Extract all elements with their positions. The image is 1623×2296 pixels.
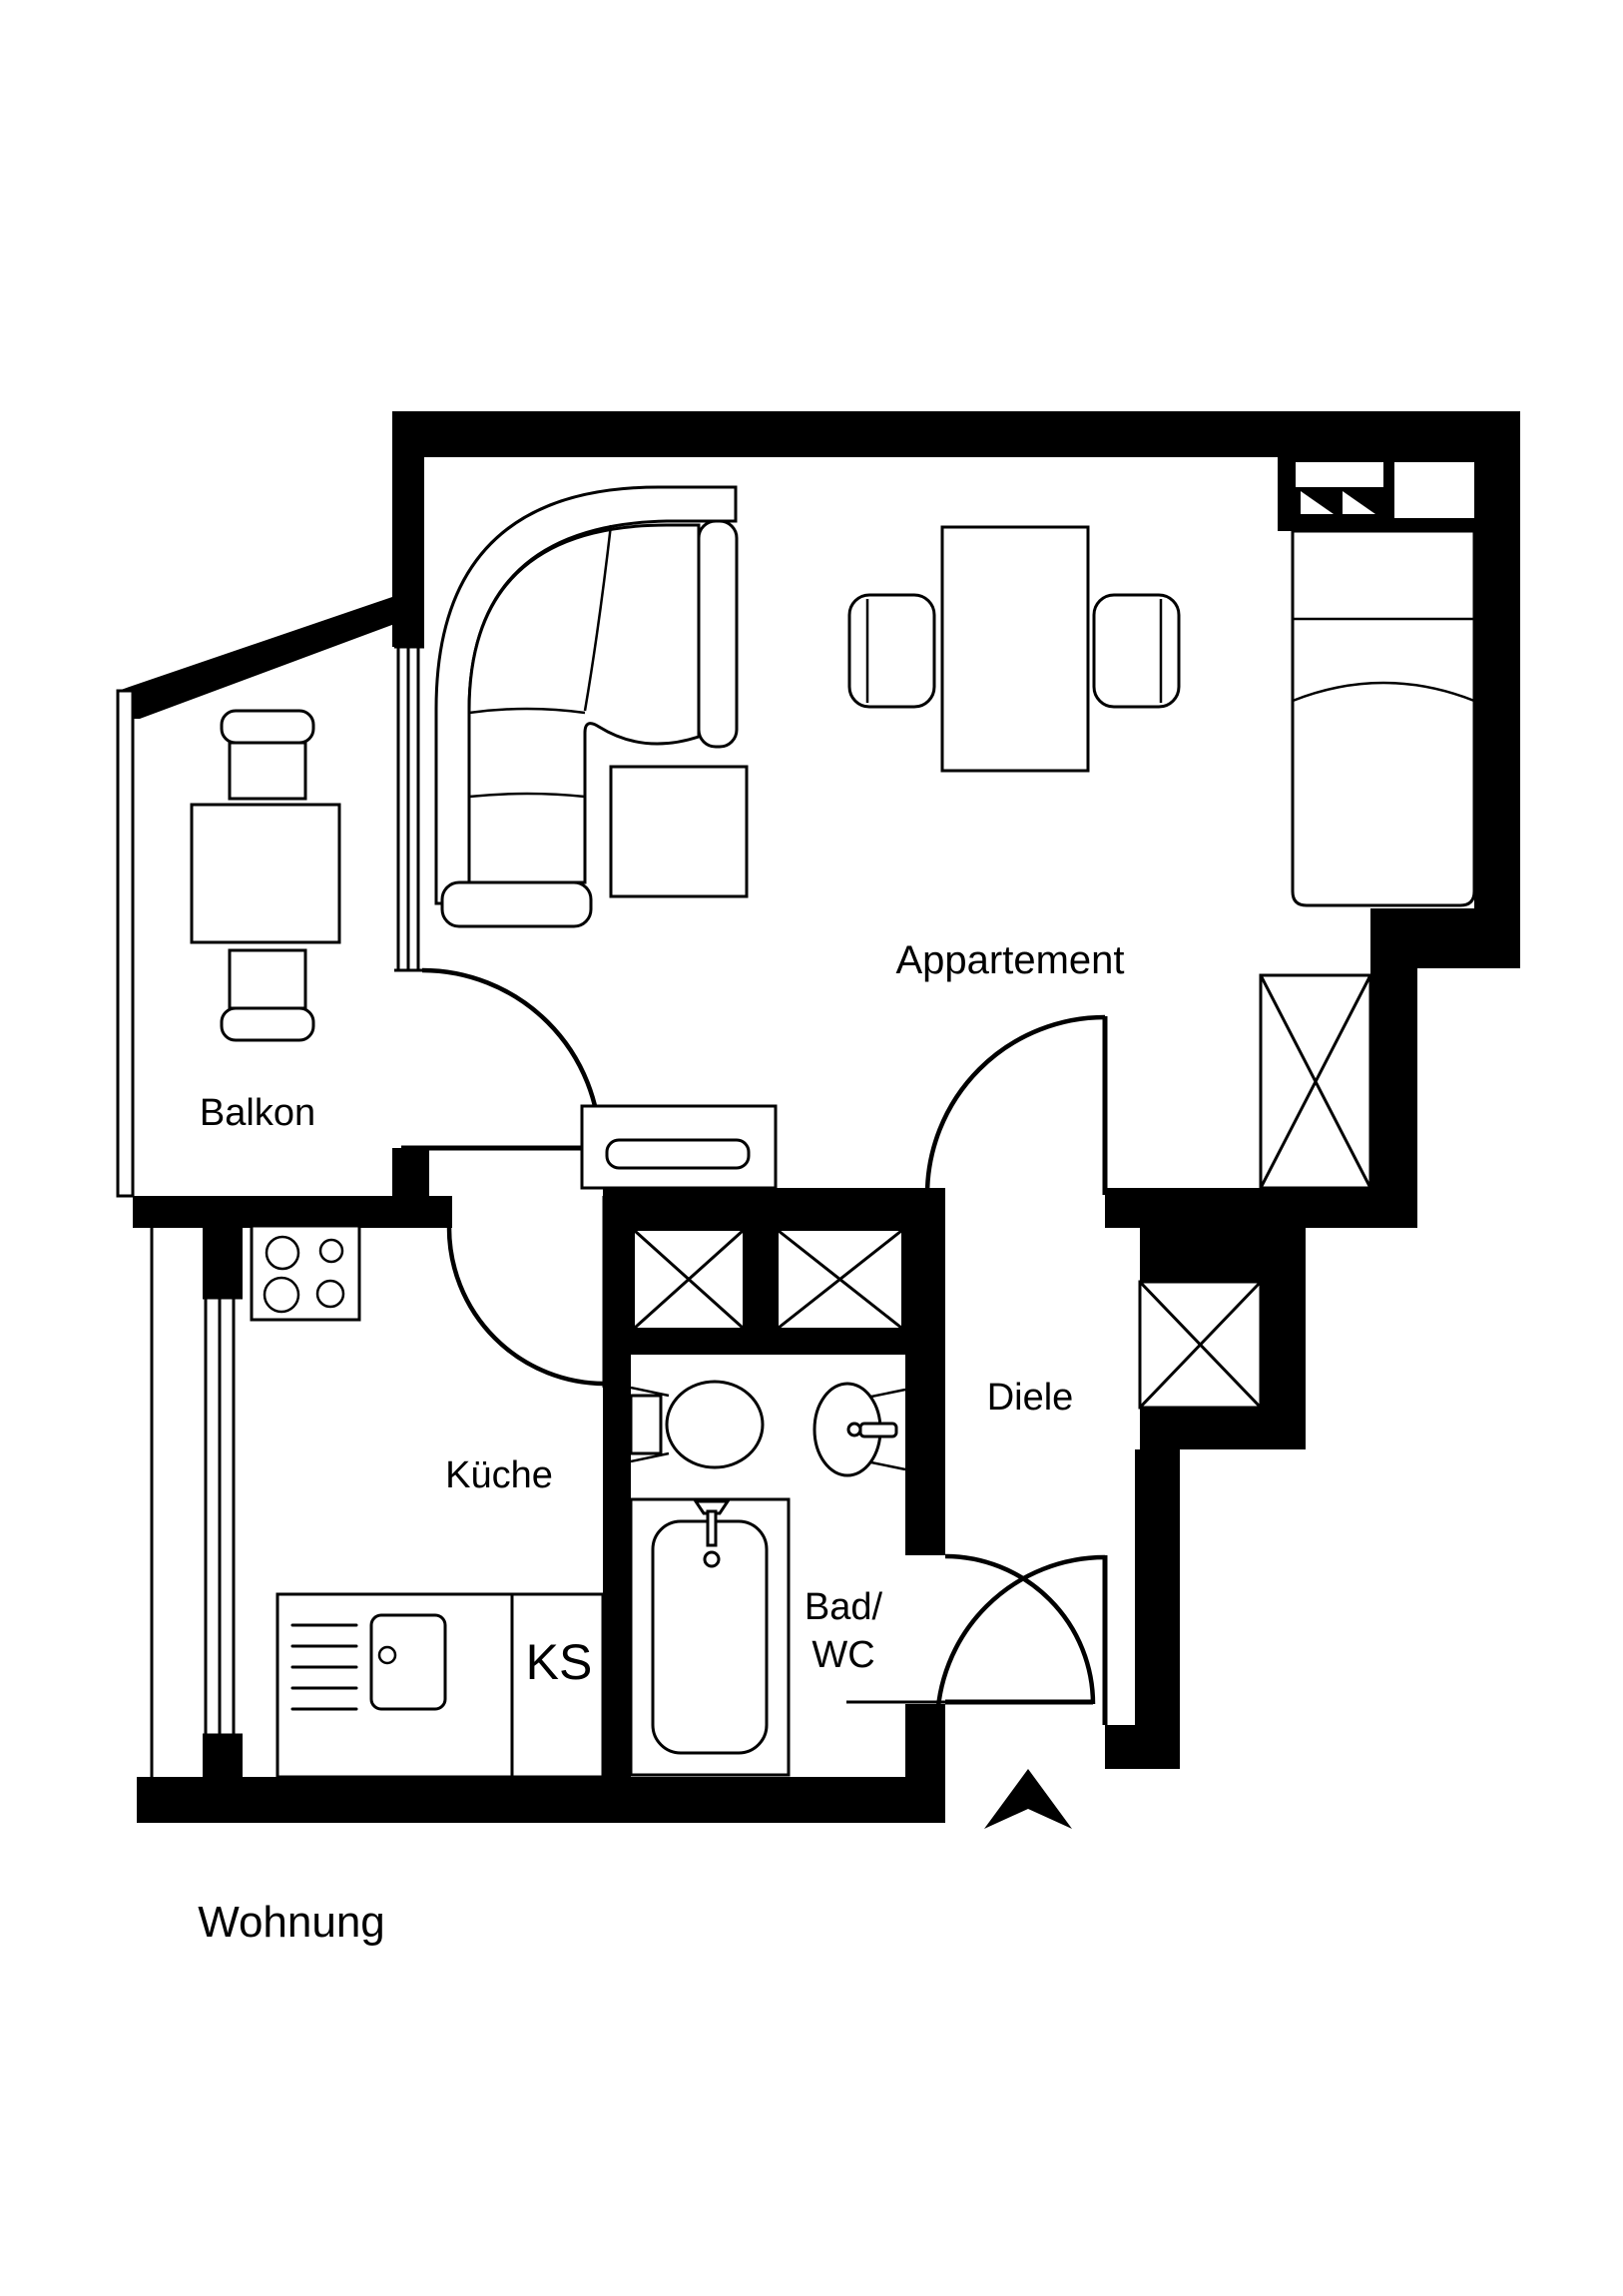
wardrobe-appartement-icon	[1261, 975, 1370, 1188]
wardrobe-diele-icon	[1140, 1282, 1261, 1408]
label-bad-line2: WC	[811, 1634, 874, 1676]
wall-kitchen-west-bottom	[203, 1735, 243, 1823]
bathtub	[631, 1499, 789, 1775]
wall-kitchen-bath-divider	[603, 1355, 631, 1777]
label-appartement: Appartement	[895, 938, 1124, 982]
wall-balcony-bottom	[133, 1196, 452, 1228]
wall-diele-ne-block	[1140, 1228, 1306, 1282]
desk	[942, 527, 1088, 771]
door-kitchen	[449, 1196, 605, 1388]
kitchen-sink-counter	[277, 1594, 512, 1777]
door-bad-wc	[846, 1556, 1093, 1704]
wall-cap-under-bed	[1370, 908, 1520, 968]
balcony-chair-top	[222, 711, 313, 799]
wall-under-diele-wardrobe	[1140, 1408, 1306, 1449]
stove	[252, 1226, 359, 1320]
wall-left-upper	[392, 411, 424, 611]
balcony-railing	[118, 691, 133, 1196]
label-ks: KS	[526, 1634, 593, 1690]
label-balkon: Balkon	[200, 1092, 315, 1134]
wall-right-upper	[1474, 411, 1520, 968]
shelf-inset-right	[1394, 462, 1474, 518]
floorplan-svg: Appartement Balkon Küche Diele Bad/ WC K…	[0, 0, 1623, 2296]
door-balcony	[401, 970, 600, 1148]
sideboard	[582, 1106, 776, 1188]
wall-kitchen-west-top	[203, 1196, 243, 1298]
bed	[1293, 531, 1474, 905]
kitchen-window	[203, 1298, 243, 1735]
balcony-chair-bottom	[222, 950, 313, 1040]
balcony-table	[192, 805, 339, 942]
wall-right-mid	[1370, 968, 1417, 1228]
label-diele: Diele	[987, 1377, 1074, 1419]
livingroom-window	[394, 647, 424, 970]
bathroom-sink	[814, 1384, 905, 1475]
wall-window-stub-bottom	[392, 1148, 429, 1196]
label-kueche: Küche	[445, 1454, 553, 1496]
shaft-right-icon	[779, 1231, 901, 1328]
wall-entrance-step	[1105, 1725, 1180, 1769]
wall-bottom	[137, 1777, 945, 1823]
wall-diele-east-upper	[1261, 1282, 1306, 1408]
label-wohnung: Wohnung	[198, 1898, 385, 1947]
wall-top	[392, 411, 1520, 457]
wall-diagonal-balcony	[118, 597, 424, 719]
entrance-arrow-icon	[984, 1769, 1072, 1829]
wall-diele-east-lower	[1135, 1449, 1180, 1769]
wall-window-stub-top	[392, 611, 424, 647]
door-diele	[927, 1016, 1105, 1195]
label-bad-line1: Bad/	[805, 1586, 883, 1628]
toilet	[631, 1382, 763, 1467]
desk-chair-left	[849, 595, 934, 707]
shaft-left-icon	[635, 1231, 743, 1328]
coffee-table	[611, 767, 747, 896]
furniture	[192, 487, 1474, 1777]
desk-chair-right	[1094, 595, 1179, 707]
wall-bath-right	[905, 1355, 945, 1555]
